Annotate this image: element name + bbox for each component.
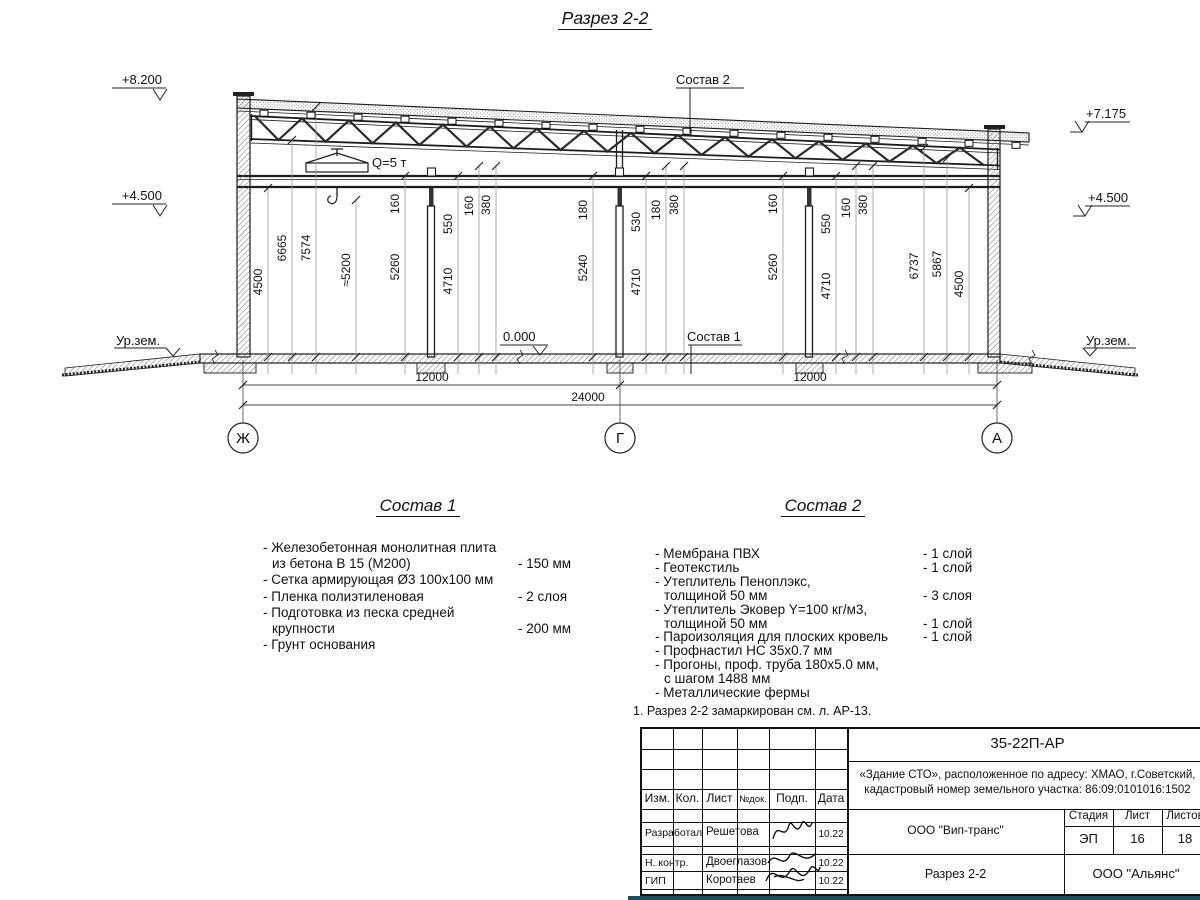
dim-label: 160: [462, 196, 476, 216]
person-name: Решетова: [706, 826, 759, 838]
sostav2-heading: Состав 2: [655, 496, 991, 516]
dim-label: 5260: [388, 253, 402, 280]
dim-label: 160: [388, 194, 402, 214]
dim-label: 530: [629, 212, 643, 232]
floor-slab: [200, 354, 1000, 363]
dim-label: 160: [839, 198, 853, 218]
sheet-title: Разрез 2-2: [847, 867, 1064, 881]
building-structure: [62, 92, 1138, 376]
col-kol: Кол.: [673, 791, 702, 805]
col-data: Дата: [815, 791, 847, 805]
axis-label: Г: [616, 430, 624, 447]
column-1: [428, 206, 435, 357]
dim-label: 5867: [930, 250, 944, 277]
elevation-label: +8.200: [122, 72, 162, 87]
dim-label: 550: [819, 214, 833, 234]
dim-label: 24000: [571, 390, 605, 404]
axis-label: А: [992, 430, 1002, 447]
left-wall: [237, 96, 250, 357]
sheet-value: 16: [1113, 831, 1162, 846]
signature: [760, 847, 822, 893]
elevation-label: +4.500: [1088, 190, 1128, 205]
sostav1-heading: Состав 1: [263, 496, 573, 516]
dim-label: 4710: [629, 268, 643, 295]
dim-label: 12000: [415, 370, 449, 384]
axis-label: Ж: [236, 430, 250, 447]
dim-label: 6665: [275, 234, 289, 261]
dim-label: 5240: [576, 254, 590, 281]
dim-label: 160: [766, 194, 780, 214]
col-izm: Изм.: [642, 791, 673, 805]
dim-label: 4500: [251, 268, 265, 295]
dim-label: 4500: [952, 270, 966, 297]
person-name: Двоеглазов: [706, 856, 767, 868]
col-podp: Подп.: [769, 791, 815, 805]
sostav2-pointer-label: Состав 2: [676, 72, 730, 87]
column-center: [616, 206, 623, 357]
right-wall: [988, 129, 1000, 357]
dim-label: 6737: [907, 252, 921, 279]
dim-label: 4710: [819, 272, 833, 299]
signature: [770, 815, 815, 847]
role-label: ГИП: [645, 875, 666, 887]
object-description-line2: кадастровый номер земельного участка: 86…: [847, 784, 1200, 796]
hook-icon: [328, 196, 337, 204]
person-name: Коротаев: [706, 874, 756, 886]
dim-label: 7574: [299, 234, 313, 261]
dim-label: ≈5200: [339, 253, 353, 287]
sheet-label: Лист: [1113, 810, 1162, 822]
sostav2-list: - Мембрана ПВХ- 1 слой - Геотекстиль- 1 …: [655, 547, 1005, 700]
role-label: Н. контр.: [645, 857, 688, 869]
stage-label: Стадия: [1064, 810, 1113, 822]
elevation-label: 0.000: [503, 329, 536, 344]
sostav1-pointer-label: Состав 1: [687, 329, 741, 344]
title-block: Изм. Кол. Лист №док. Подп. Дата Разработ…: [640, 727, 1200, 896]
section-drawing: +8.200 +4.500 +7.175 +4.500 0.000 Ур.зем…: [0, 0, 1200, 470]
dim-label: 5260: [766, 253, 780, 280]
bottom-strip: [628, 896, 1200, 900]
object-description-line1: «Здание СТО», расположенное по адресу: Х…: [847, 769, 1200, 781]
dim-label: 12000: [793, 370, 827, 384]
ground-level-label: Ур.зем.: [1086, 333, 1130, 348]
column-2: [806, 206, 813, 357]
document-number: 35-22П-АР: [847, 735, 1200, 752]
sheets-label: Листов: [1162, 810, 1200, 822]
role-label: Разработал: [645, 827, 702, 839]
dim-label: 180: [649, 200, 663, 220]
drawing-note: 1. Разрез 2-2 замаркирован см. л. АР-13.: [633, 704, 871, 718]
stage-value: ЭП: [1064, 831, 1113, 846]
sostav1-list: - Железобетонная монолитная плита из бет…: [263, 540, 593, 653]
elevation-label: +7.175: [1086, 106, 1126, 121]
dim-label: 4710: [441, 267, 455, 294]
col-ndok: №док.: [737, 794, 769, 805]
design-org: ООО "Вип-транс": [847, 823, 1064, 837]
sheets-value: 18: [1162, 831, 1200, 846]
elevation-label: +4.500: [122, 188, 162, 203]
dim-label: 380: [856, 195, 870, 215]
customer-org: ООО "Альянс": [1064, 866, 1200, 881]
dim-label: 380: [479, 195, 493, 215]
ground-level-label: Ур.зем.: [116, 333, 160, 348]
crane-capacity-label: Q=5 т: [372, 155, 407, 170]
date-value: 10.22: [815, 829, 847, 840]
col-list: Лист: [702, 791, 737, 805]
dim-label: 380: [667, 195, 681, 215]
dim-label: 180: [576, 200, 590, 220]
dim-label: 550: [441, 214, 455, 234]
